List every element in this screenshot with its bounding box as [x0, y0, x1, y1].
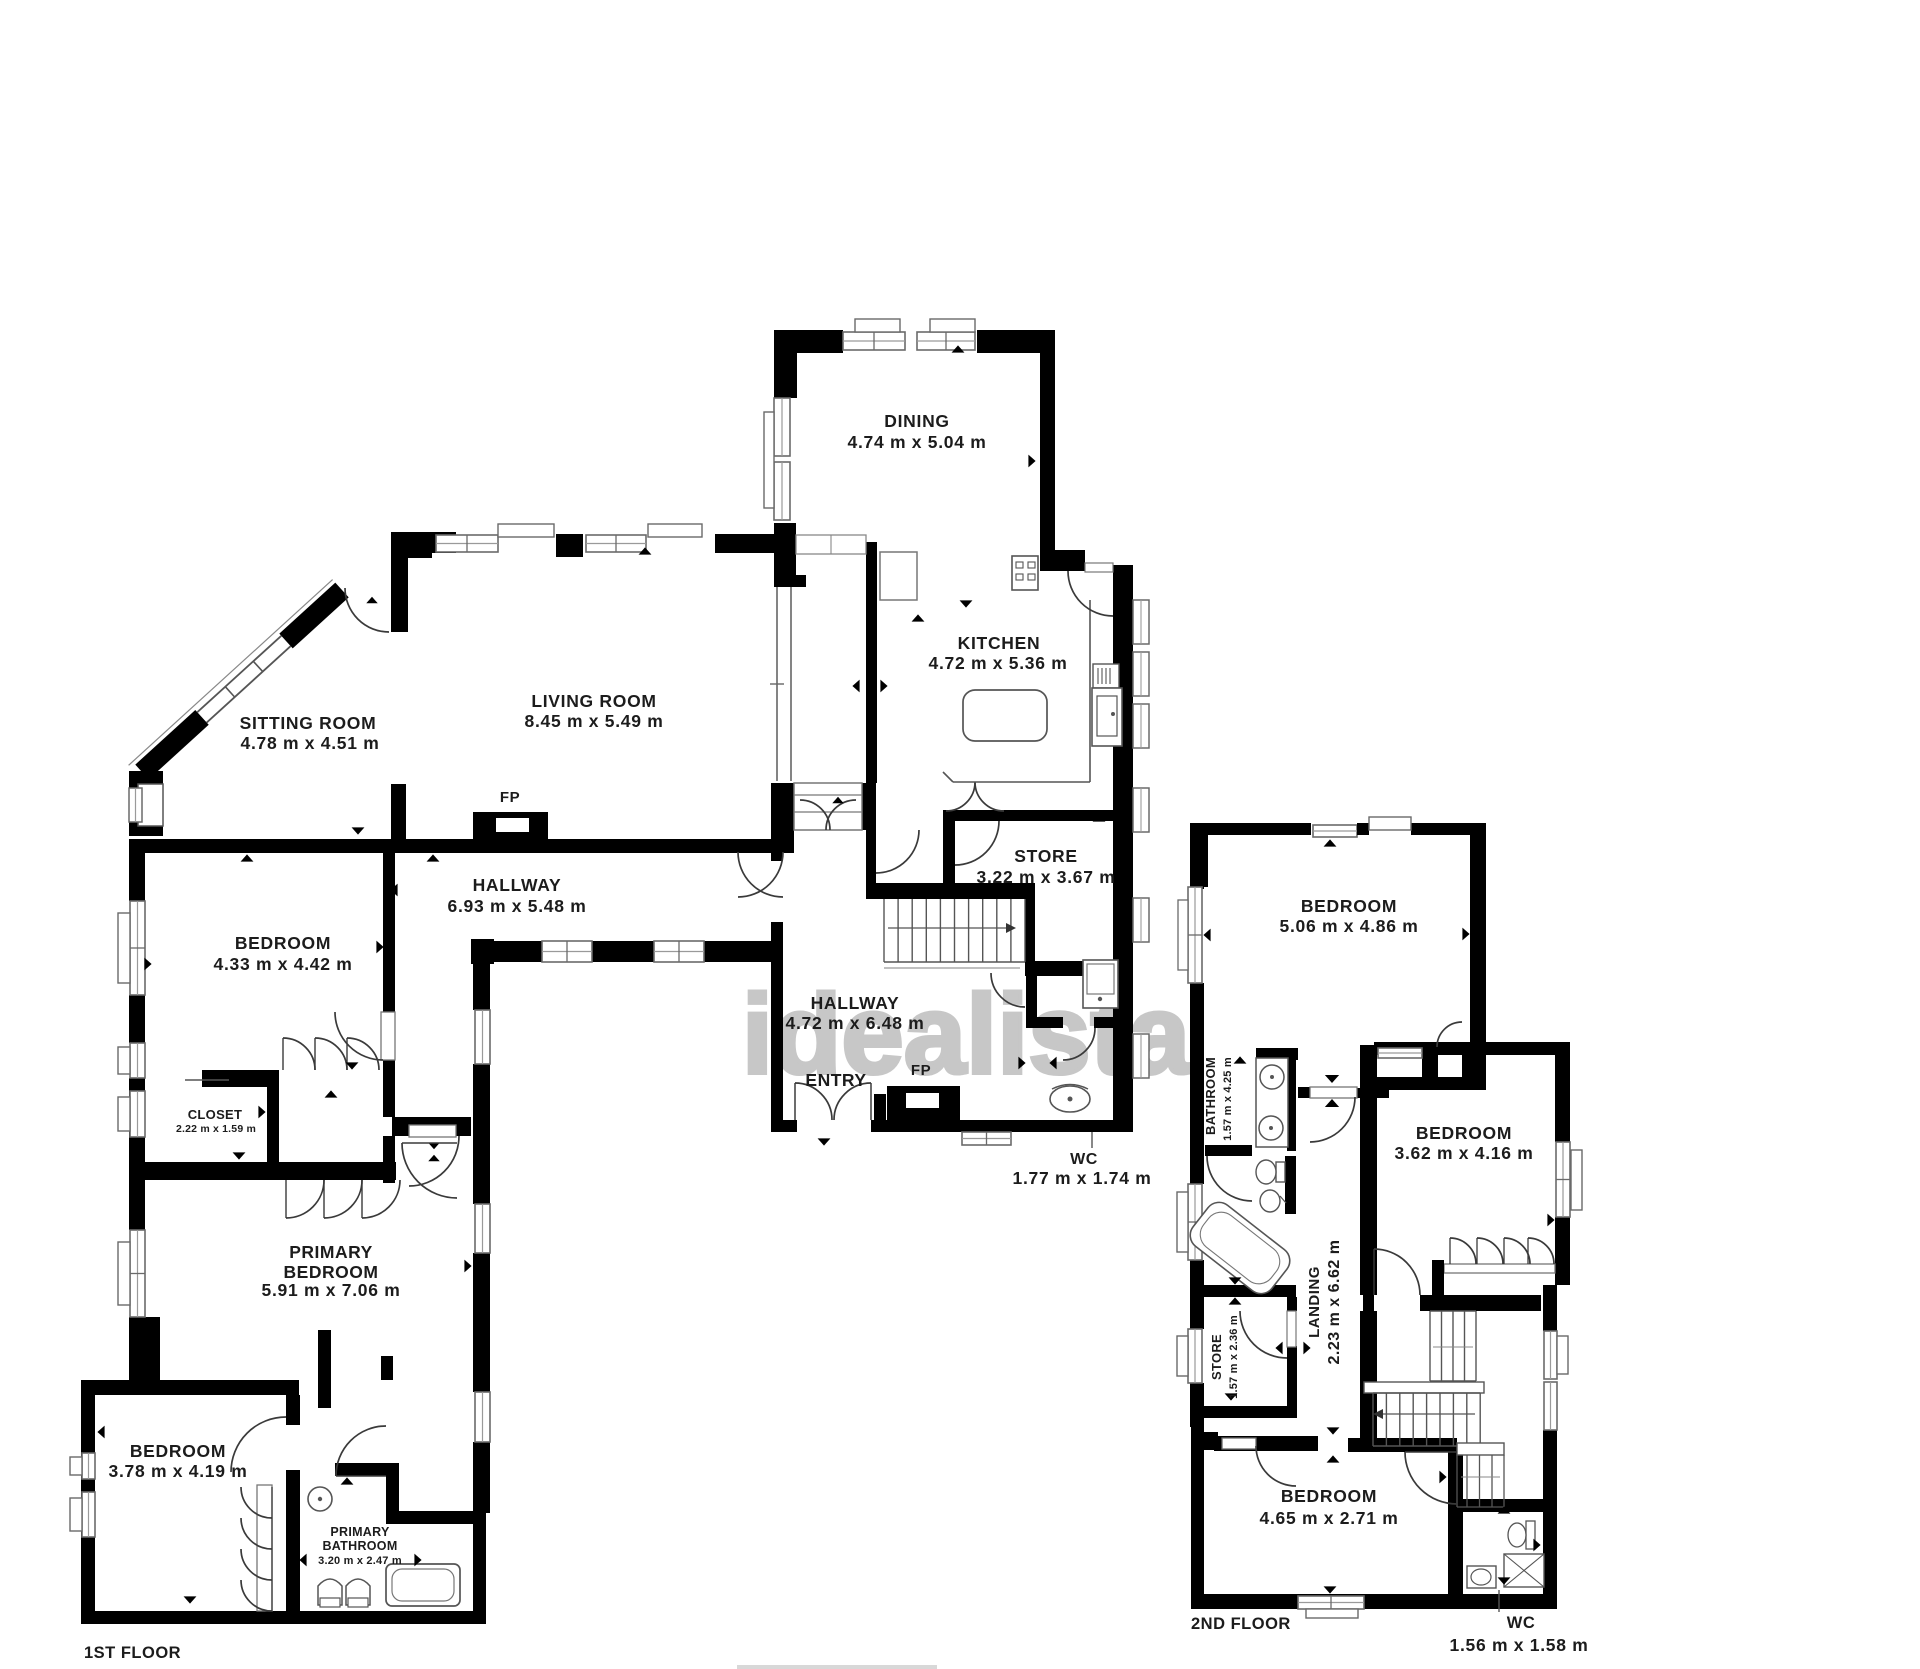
svg-text:HALLWAY: HALLWAY — [811, 993, 900, 1013]
svg-text:1.57 m x 4.25 m: 1.57 m x 4.25 m — [1222, 1057, 1234, 1141]
svg-text:LANDING: LANDING — [1306, 1266, 1323, 1338]
svg-text:5.91 m x 7.06 m: 5.91 m x 7.06 m — [262, 1280, 401, 1300]
svg-text:4.78 m x 4.51 m: 4.78 m x 4.51 m — [241, 733, 380, 753]
svg-text:SITTING ROOM: SITTING ROOM — [240, 713, 377, 733]
svg-text:2.23 m x 6.62 m: 2.23 m x 6.62 m — [1326, 1240, 1343, 1365]
svg-text:STORE: STORE — [1209, 1334, 1224, 1380]
svg-text:5.06 m x 4.86 m: 5.06 m x 4.86 m — [1280, 916, 1419, 936]
svg-text:LIVING ROOM: LIVING ROOM — [531, 691, 656, 711]
svg-text:8.45 m x 5.49 m: 8.45 m x 5.49 m — [525, 711, 664, 731]
svg-text:HALLWAY: HALLWAY — [473, 875, 562, 895]
svg-text:BEDROOM: BEDROOM — [1416, 1123, 1512, 1143]
svg-text:FP: FP — [911, 1062, 931, 1079]
svg-text:PRIMARY: PRIMARY — [289, 1242, 373, 1262]
svg-text:KITCHEN: KITCHEN — [958, 633, 1041, 653]
svg-text:4.74 m x 5.04 m: 4.74 m x 5.04 m — [848, 432, 987, 452]
svg-text:WC: WC — [1070, 1151, 1098, 1168]
svg-text:STORE: STORE — [1014, 846, 1077, 866]
svg-text:3.78 m x 4.19 m: 3.78 m x 4.19 m — [109, 1461, 248, 1481]
svg-text:FP: FP — [500, 789, 520, 806]
svg-text:BEDROOM: BEDROOM — [130, 1441, 226, 1461]
svg-text:1.56 m x 1.58 m: 1.56 m x 1.58 m — [1450, 1635, 1589, 1655]
svg-text:1.77 m x 1.74 m: 1.77 m x 1.74 m — [1013, 1168, 1152, 1188]
svg-text:4.72 m x 6.48 m: 4.72 m x 6.48 m — [786, 1013, 925, 1033]
svg-text:3.20 m x 2.47 m: 3.20 m x 2.47 m — [318, 1555, 402, 1567]
svg-text:1ST FLOOR: 1ST FLOOR — [84, 1644, 181, 1662]
svg-text:4.33 m x 4.42 m: 4.33 m x 4.42 m — [214, 954, 353, 974]
svg-text:3.22 m x 3.67 m: 3.22 m x 3.67 m — [977, 867, 1116, 887]
svg-text:CLOSET: CLOSET — [188, 1107, 243, 1122]
svg-text:ENTRY: ENTRY — [805, 1070, 866, 1090]
svg-text:PRIMARY: PRIMARY — [330, 1525, 390, 1539]
svg-text:1.57 m x 2.36 m: 1.57 m x 2.36 m — [1228, 1315, 1240, 1399]
svg-text:BEDROOM: BEDROOM — [1281, 1486, 1377, 1506]
svg-text:BATHROOM: BATHROOM — [1203, 1057, 1218, 1135]
svg-text:BEDROOM: BEDROOM — [1301, 896, 1397, 916]
svg-text:6.93 m x 5.48 m: 6.93 m x 5.48 m — [448, 896, 587, 916]
svg-text:3.62 m x 4.16 m: 3.62 m x 4.16 m — [1395, 1143, 1534, 1163]
svg-text:4.65 m x 2.71 m: 4.65 m x 2.71 m — [1260, 1508, 1399, 1528]
svg-text:WC: WC — [1507, 1614, 1536, 1632]
svg-text:2ND FLOOR: 2ND FLOOR — [1191, 1615, 1291, 1633]
svg-text:4.72 m x 5.36 m: 4.72 m x 5.36 m — [929, 653, 1068, 673]
svg-text:2.22 m x 1.59 m: 2.22 m x 1.59 m — [176, 1123, 256, 1135]
svg-text:BEDROOM: BEDROOM — [235, 933, 331, 953]
svg-text:DINING: DINING — [884, 411, 949, 431]
svg-text:BATHROOM: BATHROOM — [322, 1539, 397, 1553]
svg-text:BEDROOM: BEDROOM — [284, 1262, 379, 1282]
